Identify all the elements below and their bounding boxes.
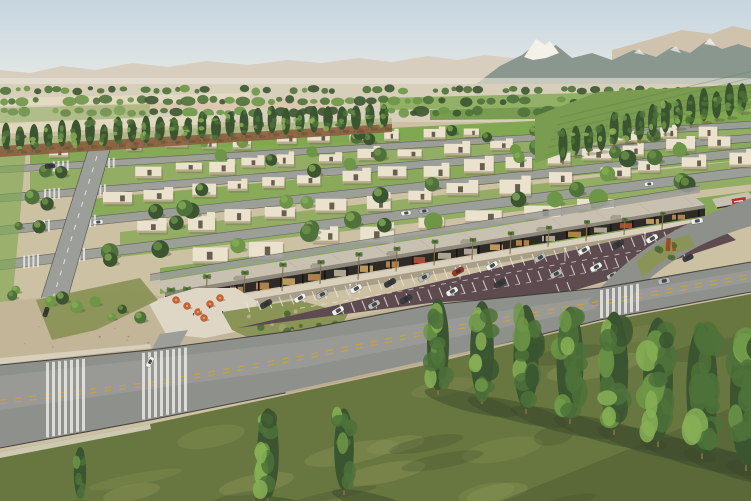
canopy-highlight (91, 297, 97, 303)
foliage (653, 111, 659, 119)
canopy-highlight (511, 145, 517, 151)
house-entry (458, 186, 463, 192)
speckle (52, 346, 54, 348)
foliage (716, 100, 721, 105)
distant-tree (534, 87, 543, 94)
distant-tree (285, 95, 294, 103)
foliage (368, 122, 373, 128)
canopy-column (610, 224, 612, 232)
canopy-column (588, 228, 590, 236)
house-wing (258, 155, 265, 160)
storefront-window (412, 257, 425, 263)
foliage (639, 111, 645, 118)
house-entry (329, 157, 333, 161)
house-wall (49, 155, 68, 157)
foliage (5, 130, 10, 136)
car (93, 219, 103, 225)
island-shrub (655, 246, 661, 252)
foliage (513, 324, 531, 351)
storefront-window (386, 261, 399, 267)
distant-tree (116, 99, 123, 105)
foliage (127, 127, 131, 132)
distant-tree (276, 97, 282, 102)
distant-tree (263, 87, 271, 93)
foliage (229, 119, 236, 123)
distant-tree (331, 98, 344, 107)
distant-tree (378, 96, 389, 103)
foliage (172, 119, 178, 125)
foliage (338, 119, 344, 123)
distant-tree (456, 85, 464, 92)
distant-tree (180, 85, 190, 93)
storefront-window (672, 215, 685, 220)
canopy-highlight (374, 188, 382, 196)
distant-tree (442, 88, 449, 95)
palm-crown (586, 221, 588, 223)
distant-tree (561, 86, 568, 91)
crosswalk-bar (52, 362, 55, 437)
house-entry (207, 252, 213, 260)
canopy-highlight (108, 314, 112, 318)
canopy-highlight (171, 217, 178, 224)
house-entry (432, 132, 436, 137)
foliage (588, 138, 592, 142)
distant-tree (388, 96, 401, 105)
canopy-highlight (178, 201, 186, 209)
house-entry (354, 174, 359, 180)
canopy-highlight (104, 253, 111, 260)
distant-tree (44, 86, 52, 94)
house-wall (319, 161, 342, 163)
island-shrub (672, 243, 677, 248)
foliage (76, 129, 81, 133)
foliage (737, 106, 744, 114)
house-entry (329, 203, 334, 210)
foliage (300, 128, 305, 131)
canopy-highlight (216, 150, 222, 156)
canopy-highlight (346, 212, 355, 221)
foliage (571, 138, 575, 145)
foliage (270, 122, 275, 129)
distant-tree (120, 87, 128, 92)
foliage (187, 118, 192, 123)
foliage (703, 97, 707, 101)
canopy-column (632, 220, 634, 227)
house-wall (506, 168, 533, 170)
canopy-column (522, 238, 524, 246)
house-entry (282, 210, 287, 216)
foliage (261, 410, 278, 429)
foliage (17, 127, 22, 132)
foliage (589, 132, 593, 138)
aerial-rendering (0, 0, 751, 501)
crosswalk-bar (636, 284, 639, 312)
distant-tree (195, 89, 200, 94)
distant-tree (477, 98, 485, 104)
sculpture (666, 238, 671, 251)
canopy-highlight (530, 127, 535, 132)
foliage (230, 111, 235, 117)
pole-lamp (349, 284, 351, 286)
foliage (116, 140, 123, 145)
canopy-column (676, 213, 678, 220)
foliage (6, 146, 10, 150)
foliage (155, 125, 160, 129)
foliage (267, 110, 271, 115)
distant-tree (290, 87, 298, 94)
foliage (324, 123, 331, 126)
distant-tree (97, 88, 105, 93)
distant-tree (252, 88, 261, 96)
canopy-highlight (302, 225, 311, 234)
canopy-highlight (649, 151, 657, 159)
distant-tree (52, 86, 61, 92)
canopy-highlight (267, 155, 273, 161)
house-wall (490, 148, 513, 150)
distant-tree (463, 86, 472, 93)
crosswalk-bar (83, 248, 85, 261)
house-entry (738, 157, 742, 164)
distant-tree (412, 97, 422, 104)
foliage (70, 128, 75, 132)
distant-tree (460, 97, 472, 107)
foliage (570, 356, 588, 371)
canopy-highlight (379, 219, 386, 226)
speckle (126, 339, 128, 341)
shrub (299, 324, 303, 328)
house-wing (394, 129, 398, 134)
distant-tree (182, 108, 198, 118)
island-shrub (668, 255, 673, 260)
foliage (198, 126, 204, 130)
house-wing (506, 138, 513, 143)
house-wing (289, 151, 294, 157)
distant-tree (75, 95, 89, 105)
canopy-column (280, 278, 282, 287)
distant-tree (308, 85, 320, 92)
distant-tree (63, 97, 77, 106)
foliage (286, 120, 290, 125)
foliage (429, 337, 445, 350)
distant-tree (302, 88, 308, 93)
foliage (157, 134, 161, 139)
crosswalk-bar (28, 255, 30, 268)
distant-tree (372, 86, 382, 93)
crosswalk-bar (624, 286, 627, 314)
foliage (475, 378, 488, 391)
house-entry (120, 195, 125, 201)
crosswalk-bar (70, 360, 73, 433)
distant-tree (297, 98, 308, 105)
foliage (243, 110, 247, 115)
house-wing (442, 163, 450, 169)
crosswalk-bar (82, 359, 85, 431)
canopy-column (456, 249, 458, 257)
foliage (16, 146, 22, 150)
palm-crown (282, 264, 284, 266)
palm-crown (510, 232, 512, 234)
crosswalk-bar (184, 348, 187, 412)
hvac-shadow (311, 265, 313, 268)
person (200, 309, 201, 311)
distant-tree (362, 86, 371, 93)
foliage (576, 139, 580, 145)
house-entry (617, 171, 622, 177)
house-entry (634, 149, 637, 154)
foliage (34, 142, 39, 148)
car (45, 163, 55, 168)
distant-tree (438, 107, 450, 114)
canopy-highlight (153, 242, 162, 251)
canopy-highlight (591, 190, 601, 200)
storefront-window (282, 278, 295, 285)
house-wall (464, 171, 494, 173)
foliage (239, 123, 244, 127)
house-wall (708, 146, 730, 148)
foliage (312, 121, 318, 127)
crosswalk-bar (32, 254, 34, 267)
distant-tree (163, 99, 173, 105)
distant-tree (16, 87, 21, 91)
foliage (2, 136, 6, 144)
distant-tree (568, 86, 576, 93)
foliage (328, 114, 333, 120)
distant-tree (509, 86, 517, 92)
foliage (182, 126, 188, 131)
storefront-window (334, 270, 347, 276)
crosswalk-bar (113, 158, 115, 168)
canopy-highlight (57, 292, 64, 299)
foliage (639, 421, 654, 442)
crosswalk-bar (178, 348, 181, 412)
foliage (253, 480, 268, 499)
distant-tree (423, 96, 434, 105)
house-entry (391, 134, 393, 139)
foliage (225, 118, 230, 122)
foliage (332, 415, 346, 426)
foliage (559, 311, 571, 333)
foliage (572, 309, 585, 325)
distant-tree (486, 98, 495, 105)
canopy-column (566, 231, 568, 239)
house-wall (209, 172, 235, 174)
foliage (602, 407, 616, 427)
foliage (651, 117, 656, 126)
house-wall (384, 139, 399, 141)
rendering-canvas (0, 0, 751, 501)
distant-tree (507, 95, 520, 104)
foliage (598, 136, 602, 142)
foliage (561, 129, 565, 137)
house-wall (311, 241, 338, 243)
crosswalk-bar (67, 161, 69, 171)
canopy-highlight (307, 147, 313, 153)
foliage (470, 354, 482, 371)
foliage (672, 101, 679, 107)
house-wall (729, 165, 751, 167)
foliage (659, 332, 674, 349)
hvac-shadow (537, 228, 539, 231)
canopy-column (324, 271, 326, 280)
crosswalk-bar (606, 289, 609, 317)
distant-tree (321, 88, 328, 94)
crosswalk-bar (76, 359, 79, 431)
canopy-highlight (426, 178, 433, 185)
canopy-highlight (135, 312, 141, 318)
foliage (423, 352, 441, 371)
canopy-highlight (302, 197, 309, 204)
foliage (173, 124, 177, 127)
person (187, 317, 188, 319)
distant-tree (577, 88, 587, 95)
foliage (47, 134, 53, 138)
umbrella-pole (203, 317, 204, 318)
house-wing (227, 159, 235, 165)
foliage (255, 442, 267, 464)
foliage (44, 128, 48, 133)
house-wall (464, 135, 479, 137)
palm-crown (434, 241, 436, 243)
foliage (258, 121, 264, 128)
house-wall (307, 141, 329, 143)
foliage (476, 332, 487, 350)
house-wall (378, 176, 407, 178)
canopy-column (412, 256, 414, 265)
foliage (20, 135, 27, 139)
palm-crown (396, 248, 398, 250)
house-entry (717, 140, 721, 146)
distant-tree (0, 87, 11, 95)
distant-tree (224, 97, 235, 104)
foliage (132, 134, 136, 139)
foliage (665, 102, 671, 110)
house-wing (469, 180, 479, 186)
crosswalk-bar (64, 361, 67, 435)
umbrella-pole (209, 303, 210, 304)
foliage (678, 110, 684, 116)
foliage (737, 99, 742, 104)
canopy-highlight (483, 133, 488, 138)
distant-tree (108, 86, 115, 93)
foliage (71, 139, 77, 145)
foliage (100, 137, 105, 143)
canopy-highlight (150, 205, 157, 212)
distant-tree (209, 96, 217, 103)
foliage (682, 414, 702, 445)
distant-tree (500, 99, 507, 105)
foliage (660, 112, 666, 116)
distant-tree (472, 86, 483, 94)
distant-tree (413, 106, 429, 117)
palm-crown (186, 288, 188, 290)
canopy-highlight (571, 183, 579, 191)
canopy-column (500, 242, 502, 250)
foliage (272, 111, 277, 118)
distant-tree (453, 110, 462, 117)
house-entry (265, 247, 270, 255)
house-wall (660, 137, 677, 139)
crosswalk-bar (58, 188, 60, 199)
distant-tree (366, 97, 377, 104)
distant-tree (472, 106, 482, 116)
foliage (344, 420, 357, 437)
storefront-window (256, 283, 269, 290)
storefront-window (360, 266, 373, 272)
foliage (323, 126, 329, 131)
foliage (730, 424, 747, 442)
distant-tree (141, 87, 151, 93)
house-wall (424, 177, 450, 179)
house-wall (682, 167, 707, 169)
distant-tree (240, 85, 249, 92)
crosswalk-bar (46, 362, 49, 437)
foliage (622, 135, 629, 141)
foliage (131, 125, 136, 131)
house-entry (439, 170, 443, 176)
house-wall (176, 169, 202, 171)
foliage (572, 377, 588, 408)
hvac-shadow (234, 277, 236, 280)
foliage (662, 121, 667, 129)
house-wing (485, 156, 494, 163)
canopy-highlight (447, 126, 453, 132)
house-wall (241, 165, 264, 167)
house-wall (444, 153, 470, 155)
canopy-column (698, 210, 700, 217)
house-entry (157, 193, 162, 199)
house-wing (164, 187, 173, 193)
foliage (142, 124, 146, 131)
foliage (640, 127, 644, 135)
foliage (258, 112, 262, 116)
foliage (335, 123, 342, 127)
house-entry (322, 136, 326, 141)
house-wing (207, 212, 215, 220)
umbrella-pole (186, 305, 187, 306)
hvac-shadow (387, 253, 389, 256)
house-entry (393, 170, 398, 176)
distant-tree (149, 108, 158, 115)
canopy-highlight (16, 223, 20, 227)
canopy-highlight (309, 165, 316, 172)
house-wall (103, 202, 132, 204)
house-entry (708, 130, 711, 136)
umbrella-pole (175, 299, 176, 300)
house-entry (502, 143, 506, 148)
house-wall (408, 200, 431, 202)
speckle (38, 326, 40, 328)
foliage (583, 133, 590, 137)
hvac-unit (235, 276, 244, 281)
storefront-window (594, 228, 607, 233)
distant-tree (99, 95, 112, 104)
foliage (570, 151, 576, 155)
foliage (520, 391, 537, 408)
distant-tree (153, 88, 159, 94)
foliage (30, 137, 36, 142)
car-window (48, 164, 52, 167)
foliage (560, 403, 581, 418)
palm-crown (170, 289, 172, 291)
house-entry (328, 233, 332, 240)
palm-crown (624, 219, 626, 221)
distant-tree (170, 108, 183, 117)
foliage (16, 134, 20, 140)
house-wall (188, 230, 215, 232)
house-wing (335, 152, 342, 156)
distant-tree (405, 98, 411, 103)
foliage (343, 111, 348, 117)
